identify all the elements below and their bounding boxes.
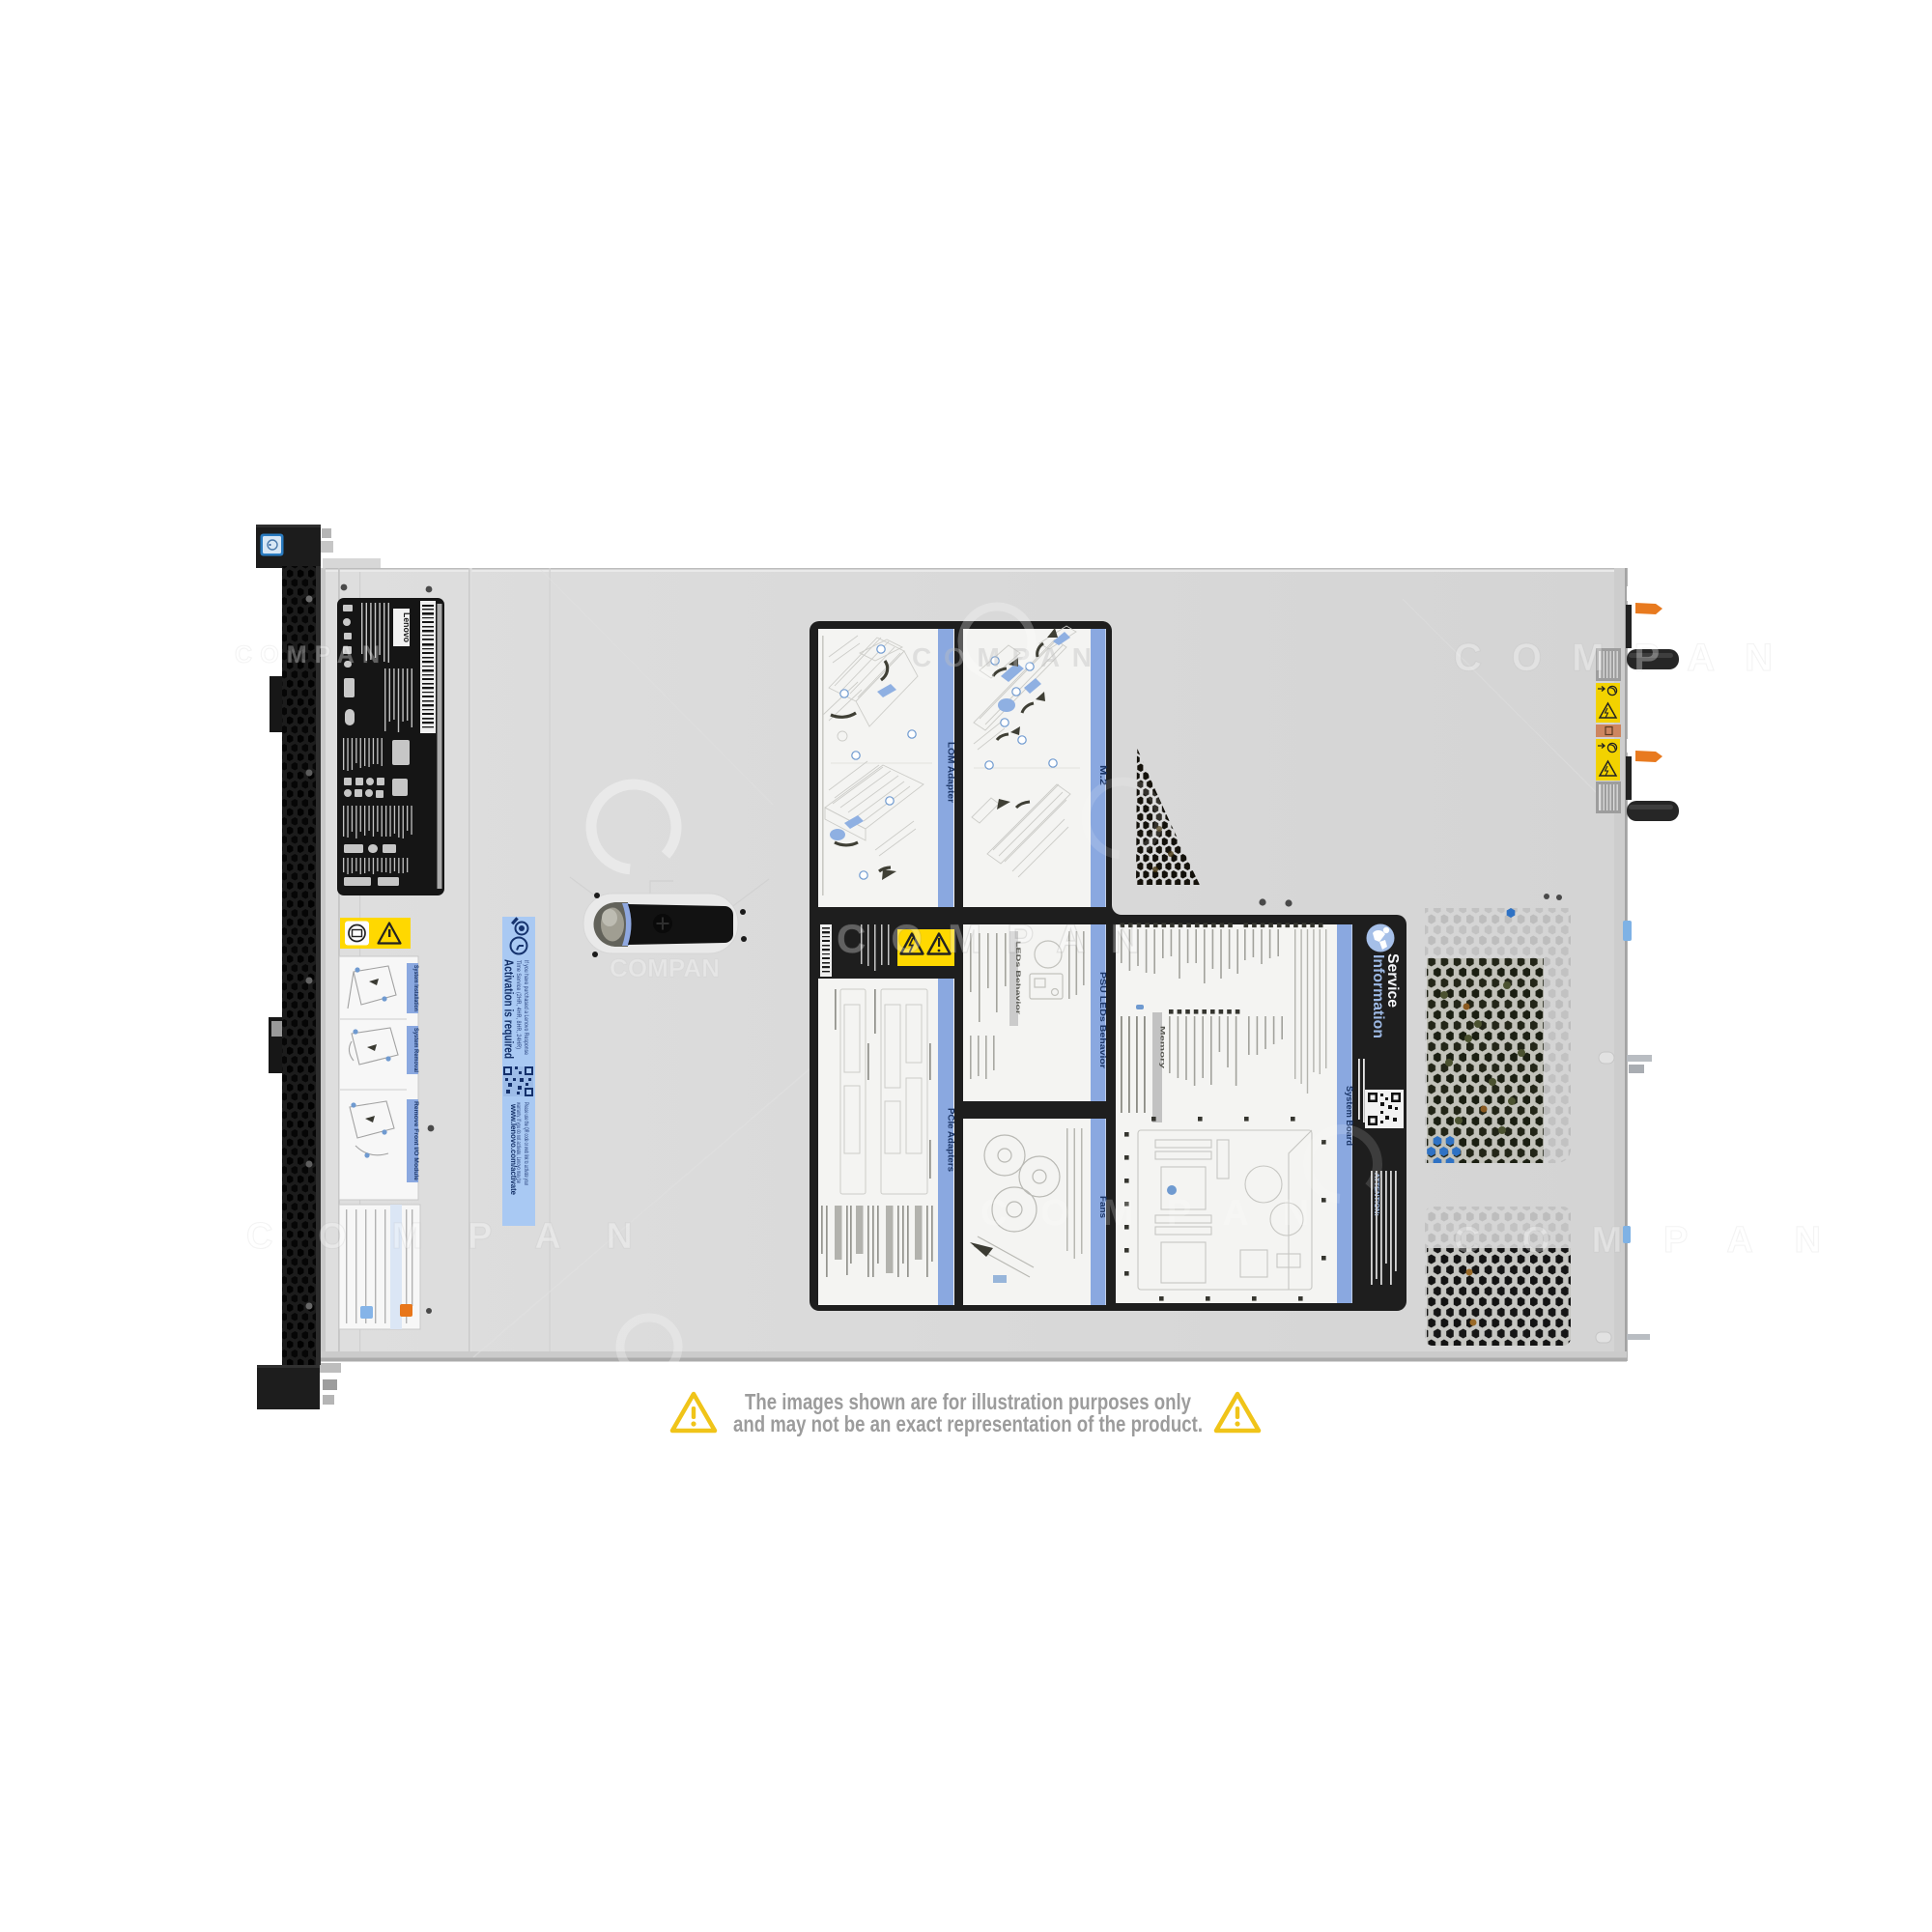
- svg-text:System Removal: System Removal: [412, 1028, 418, 1072]
- svg-text:PSU LEDs Behavior: PSU LEDs Behavior: [1098, 972, 1108, 1069]
- svg-text:Memory: Memory: [1159, 1026, 1166, 1069]
- svg-text:If you have purchased a Lenovo: If you have purchased a Lenovo Response: [523, 960, 529, 1055]
- svg-text:Lenovo: Lenovo: [402, 612, 412, 642]
- svg-text:Remove Front I/O Module: Remove Front I/O Module: [412, 1101, 418, 1181]
- svg-text:PCIe Adapters: PCIe Adapters: [947, 1108, 956, 1172]
- svg-text:System Installation: System Installation: [412, 965, 418, 1011]
- svg-text:LOM Adapter: LOM Adapter: [947, 742, 956, 804]
- svg-text:COMPAN: COMPAN: [610, 953, 720, 982]
- svg-text:Information: Information: [1370, 954, 1386, 1038]
- svg-text:www.lenovo.com/activate: www.lenovo.com/activate: [509, 1103, 519, 1195]
- svg-text:System Board: System Board: [1344, 1086, 1354, 1146]
- svg-text:and may not be an exact repres: and may not be an exact representation o…: [733, 1411, 1203, 1436]
- svg-text:Activation is required: Activation is required: [502, 959, 516, 1059]
- svg-text:Please use the QR code or web: Please use the QR code or web link to ac…: [523, 1102, 528, 1185]
